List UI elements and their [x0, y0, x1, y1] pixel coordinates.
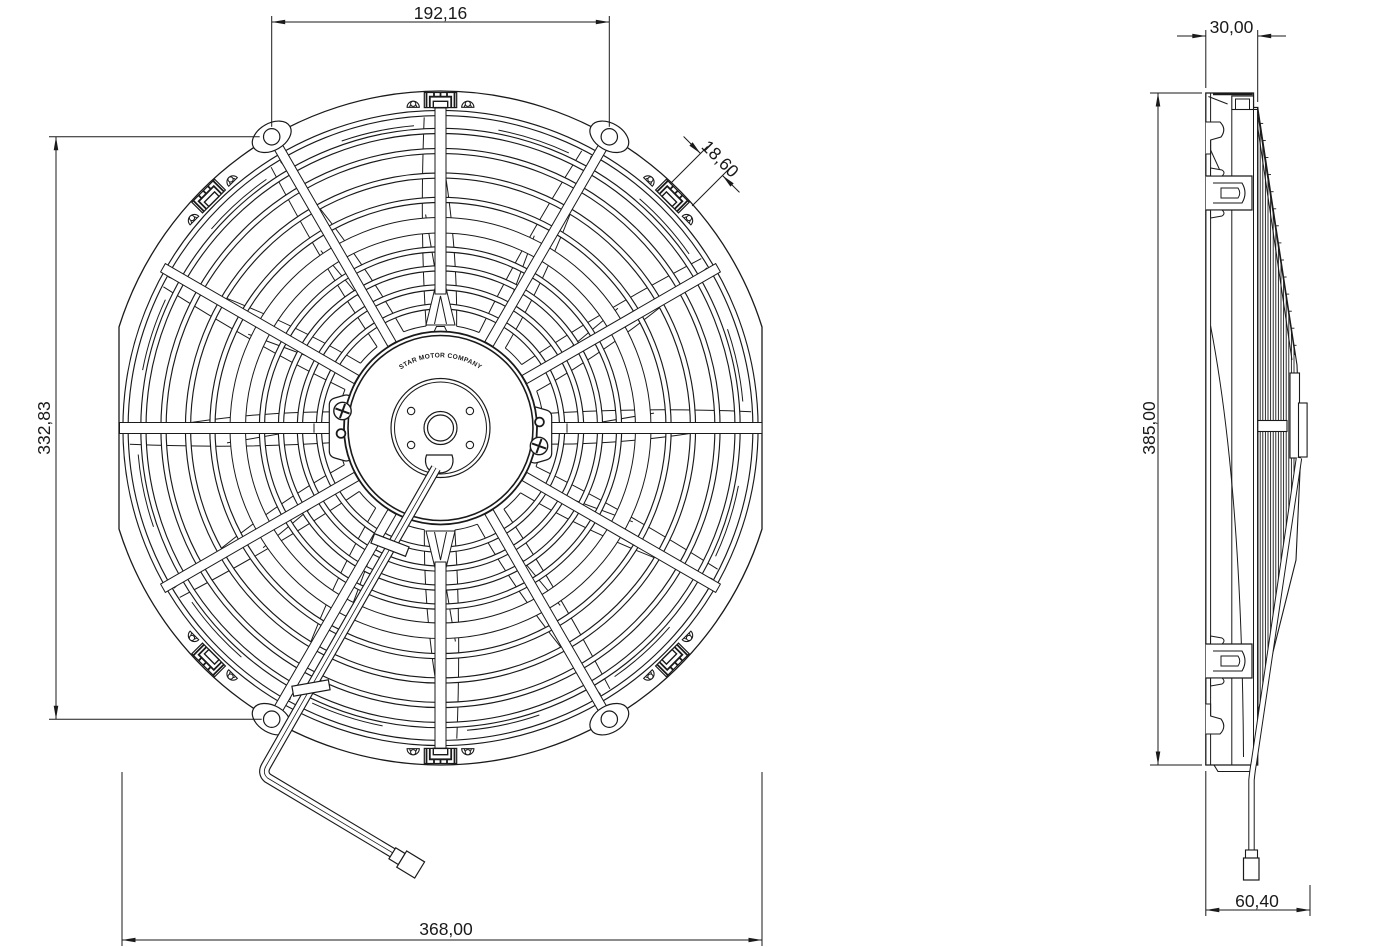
svg-text:30,00: 30,00	[1210, 17, 1254, 37]
svg-text:332,83: 332,83	[34, 401, 54, 455]
svg-text:385,00: 385,00	[1139, 401, 1159, 455]
svg-text:192,16: 192,16	[414, 3, 468, 23]
svg-text:368,00: 368,00	[419, 919, 473, 939]
svg-text:60,40: 60,40	[1235, 891, 1279, 911]
